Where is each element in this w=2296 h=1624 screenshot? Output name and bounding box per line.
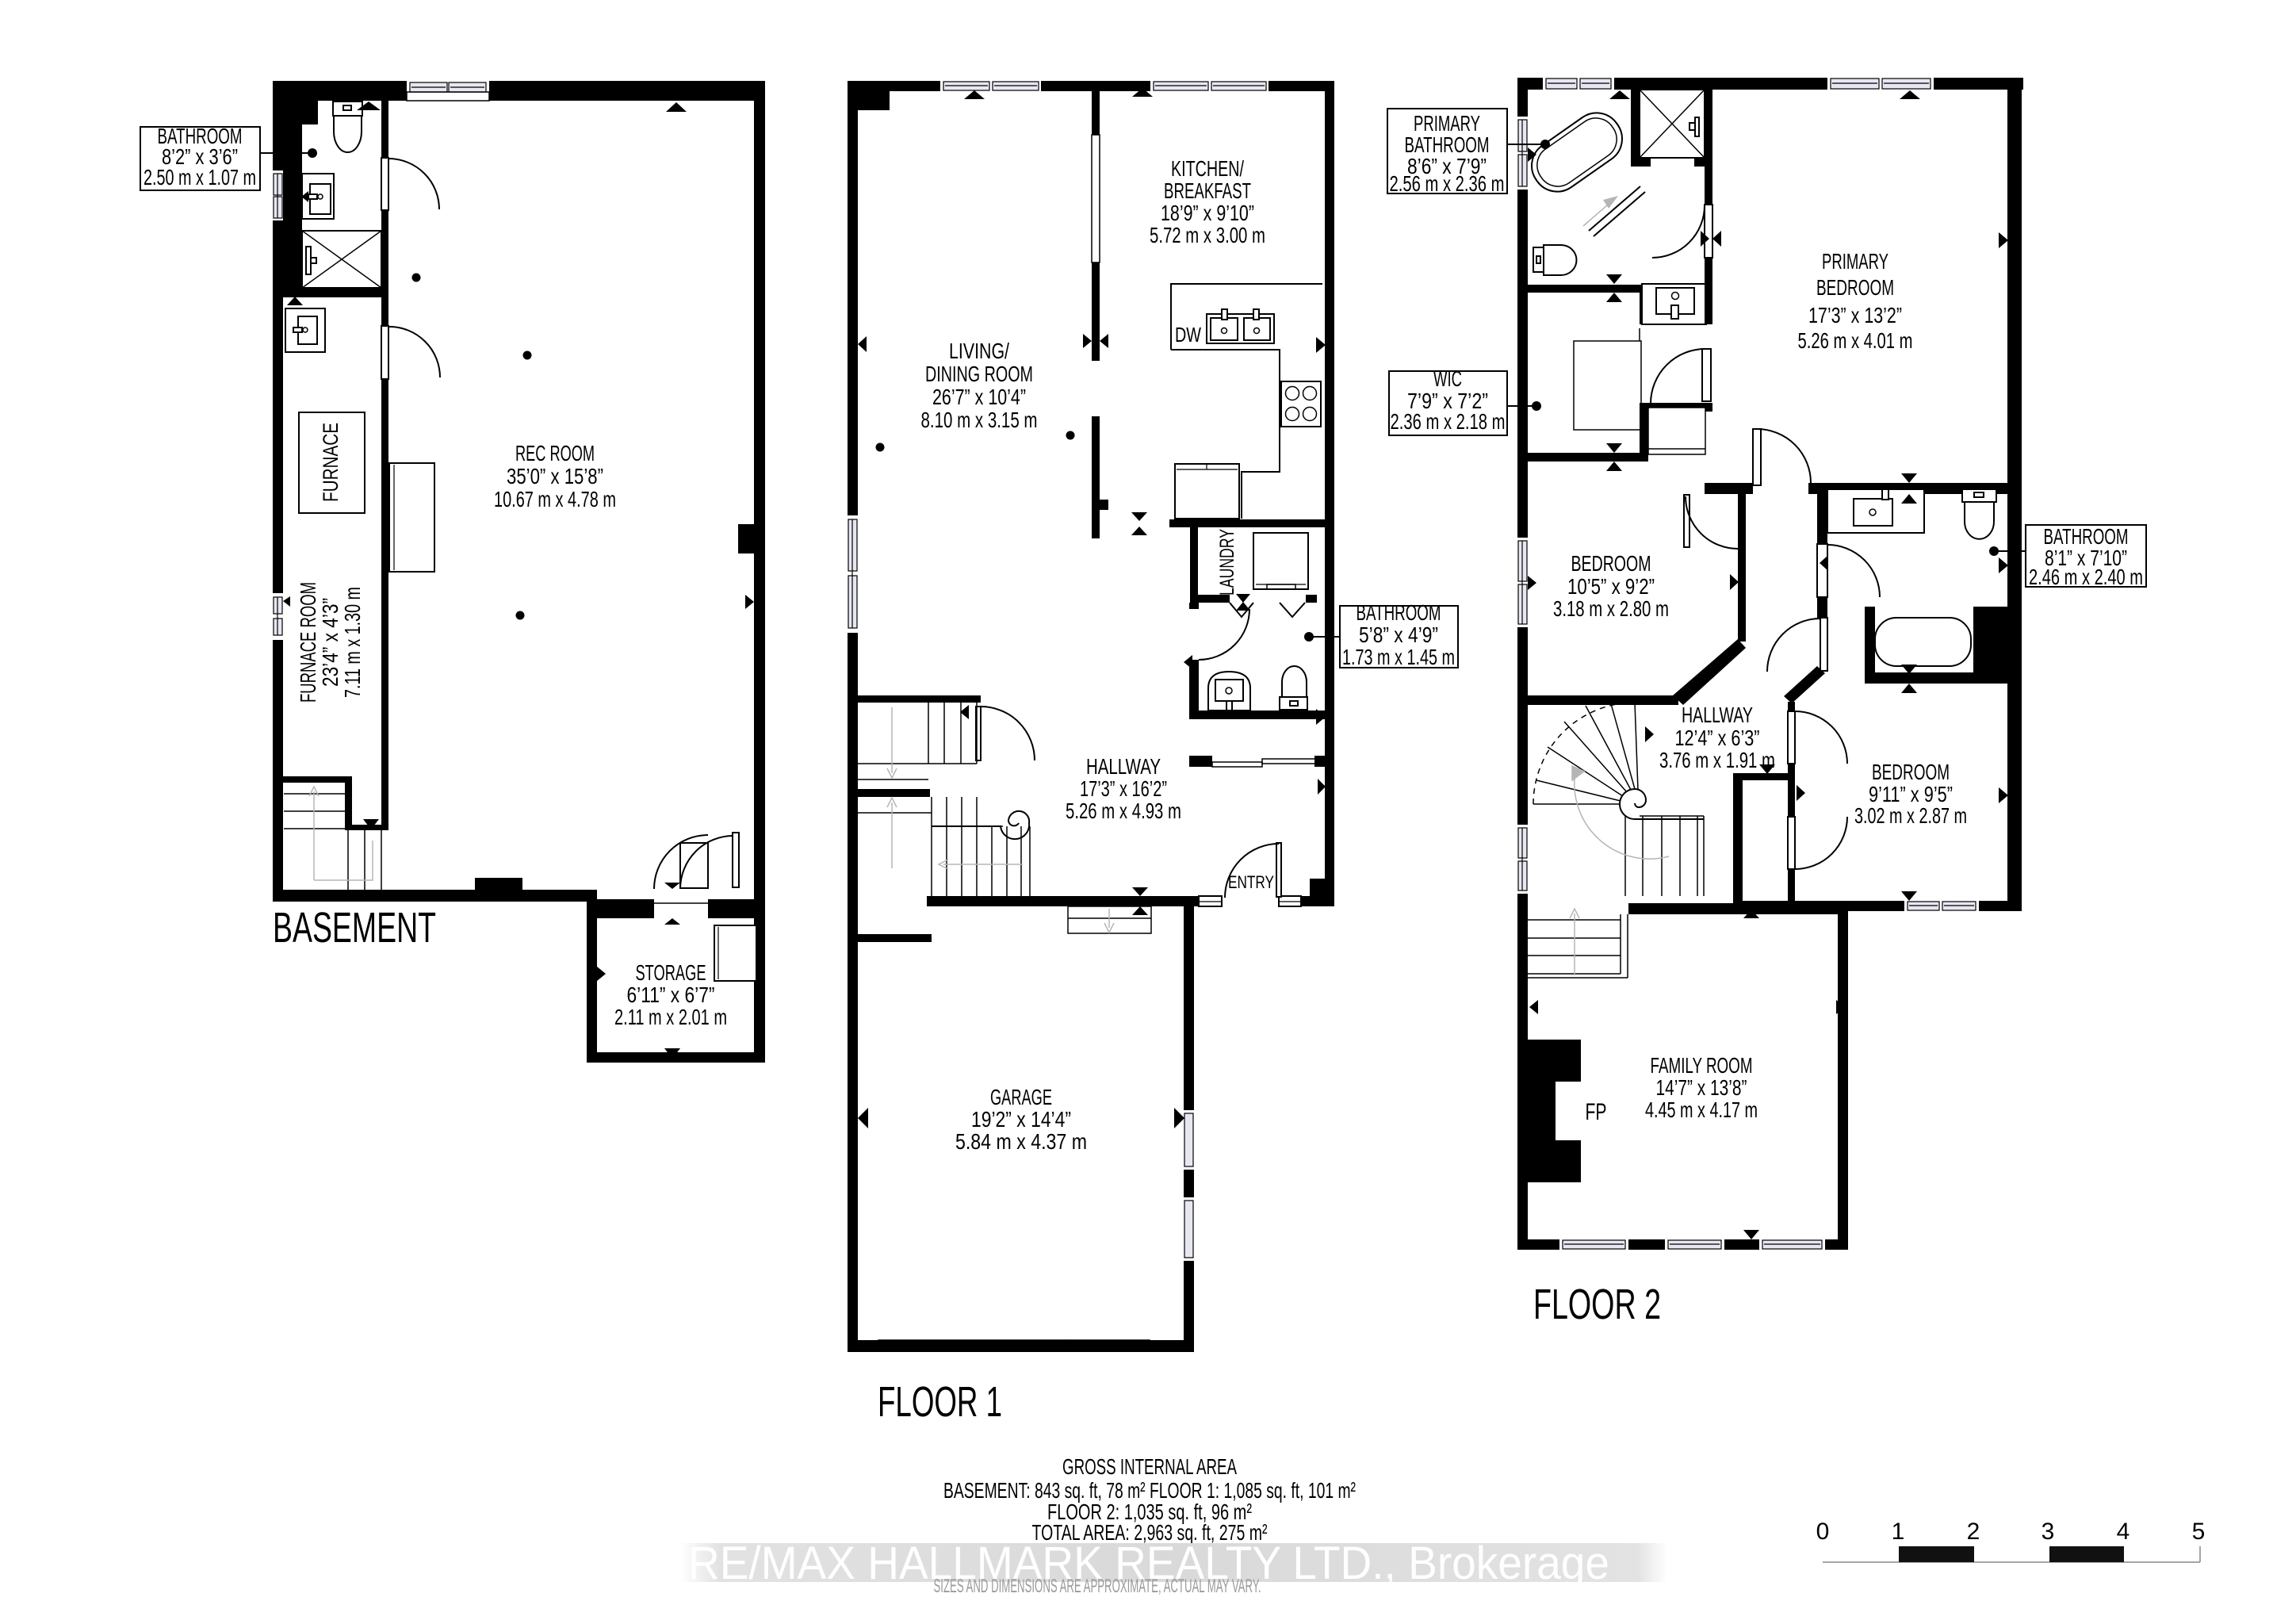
svg-text:23’4” x 4’3”: 23’4” x 4’3” bbox=[318, 598, 342, 687]
svg-text:2.46 m x 2.40 m: 2.46 m x 2.40 m bbox=[2029, 565, 2143, 589]
svg-text:DINING ROOM: DINING ROOM bbox=[925, 362, 1033, 386]
svg-text:FURNACE: FURNACE bbox=[319, 423, 342, 502]
svg-text:LAUNDRY: LAUNDRY bbox=[1216, 529, 1238, 596]
svg-text:3.02 m x 2.87 m: 3.02 m x 2.87 m bbox=[1854, 803, 1967, 828]
svg-text:KITCHEN/: KITCHEN/ bbox=[1171, 156, 1244, 181]
svg-text:12’4” x 6’3”: 12’4” x 6’3” bbox=[1675, 726, 1760, 750]
svg-text:FURNACE ROOM: FURNACE ROOM bbox=[296, 582, 320, 703]
svg-text:5.26 m x 4.93 m: 5.26 m x 4.93 m bbox=[1066, 799, 1181, 823]
svg-text:BREAKFAST: BREAKFAST bbox=[1164, 178, 1251, 203]
svg-text:STORAGE: STORAGE bbox=[636, 960, 706, 985]
svg-text:10.67 m x 4.78 m: 10.67 m x 4.78 m bbox=[494, 487, 616, 511]
svg-text:2.11 m x 2.01 m: 2.11 m x 2.01 m bbox=[614, 1005, 727, 1029]
svg-text:2.50 m x 1.07 m: 2.50 m x 1.07 m bbox=[143, 165, 256, 190]
svg-text:SIZES AND DIMENSIONS ARE APPRO: SIZES AND DIMENSIONS ARE APPROXIMATE, AC… bbox=[934, 1576, 1261, 1597]
svg-text:26’7” x 10’4”: 26’7” x 10’4” bbox=[932, 385, 1026, 409]
svg-text:3.18 m x 2.80 m: 3.18 m x 2.80 m bbox=[1553, 596, 1669, 621]
svg-text:17’3” x 16’2”: 17’3” x 16’2” bbox=[1080, 776, 1167, 801]
svg-text:2.56 m x 2.36 m: 2.56 m x 2.36 m bbox=[1390, 171, 1505, 196]
svg-text:1: 1 bbox=[1892, 1519, 1905, 1545]
svg-text:ENTRY: ENTRY bbox=[1228, 872, 1274, 892]
svg-text:BEDROOM: BEDROOM bbox=[1816, 275, 1894, 300]
svg-text:REC ROOM: REC ROOM bbox=[515, 441, 595, 465]
svg-text:10’5” x 9’2”: 10’5” x 9’2” bbox=[1567, 574, 1655, 599]
svg-text:8.10 m x 3.15 m: 8.10 m x 3.15 m bbox=[921, 408, 1038, 432]
svg-text:BEDROOM: BEDROOM bbox=[1571, 551, 1651, 576]
svg-text:GROSS INTERNAL AREA: GROSS INTERNAL AREA bbox=[1062, 1454, 1237, 1479]
svg-text:4: 4 bbox=[2117, 1519, 2130, 1545]
svg-text:4.45 m x 4.17 m: 4.45 m x 4.17 m bbox=[1645, 1097, 1758, 1122]
svg-text:3.76 m x 1.91 m: 3.76 m x 1.91 m bbox=[1659, 748, 1775, 772]
svg-text:35’0” x 15’8”: 35’0” x 15’8” bbox=[507, 464, 603, 488]
svg-text:2: 2 bbox=[1967, 1519, 1980, 1545]
svg-text:19’2” x 14’4”: 19’2” x 14’4” bbox=[971, 1107, 1071, 1132]
svg-text:HALLWAY: HALLWAY bbox=[1682, 703, 1753, 727]
svg-text:6’11” x 6’7”: 6’11” x 6’7” bbox=[627, 982, 715, 1007]
svg-text:5.26 m x 4.01 m: 5.26 m x 4.01 m bbox=[1798, 328, 1913, 353]
svg-text:FLOOR 2: FLOOR 2 bbox=[1533, 1281, 1661, 1328]
svg-text:DW: DW bbox=[1175, 323, 1201, 347]
svg-text:BEDROOM: BEDROOM bbox=[1872, 760, 1950, 784]
svg-text:FLOOR 1: FLOOR 1 bbox=[878, 1378, 1002, 1426]
svg-text:1.73 m x 1.45 m: 1.73 m x 1.45 m bbox=[1342, 645, 1455, 669]
svg-text:14’7” x 13’8”: 14’7” x 13’8” bbox=[1656, 1075, 1747, 1100]
svg-text:PRIMARY: PRIMARY bbox=[1822, 249, 1888, 274]
svg-text:5’8” x 4’9”: 5’8” x 4’9” bbox=[1359, 622, 1438, 647]
svg-text:LIVING/: LIVING/ bbox=[949, 339, 1009, 363]
svg-text:2.36 m x 2.18 m: 2.36 m x 2.18 m bbox=[1391, 409, 1506, 434]
svg-text:FAMILY ROOM: FAMILY ROOM bbox=[1651, 1053, 1753, 1078]
svg-text:17’3” x 13’2”: 17’3” x 13’2” bbox=[1808, 303, 1902, 327]
svg-text:HALLWAY: HALLWAY bbox=[1086, 754, 1161, 779]
svg-text:3: 3 bbox=[2042, 1519, 2055, 1545]
svg-text:GARAGE: GARAGE bbox=[990, 1085, 1052, 1109]
svg-text:BASEMENT: BASEMENT bbox=[273, 904, 436, 952]
svg-text:FP: FP bbox=[1586, 1099, 1607, 1125]
svg-text:0: 0 bbox=[1816, 1519, 1830, 1545]
svg-text:BATHROOM: BATHROOM bbox=[1357, 600, 1441, 625]
svg-text:5.84 m x 4.37 m: 5.84 m x 4.37 m bbox=[955, 1129, 1087, 1154]
svg-text:WIC: WIC bbox=[1433, 366, 1462, 391]
svg-text:18’9” x 9’10”: 18’9” x 9’10” bbox=[1161, 201, 1254, 225]
svg-text:7.11 m x 1.30 m: 7.11 m x 1.30 m bbox=[340, 587, 365, 698]
svg-text:5.72 m x 3.00 m: 5.72 m x 3.00 m bbox=[1150, 223, 1265, 247]
svg-text:5: 5 bbox=[2192, 1519, 2206, 1545]
